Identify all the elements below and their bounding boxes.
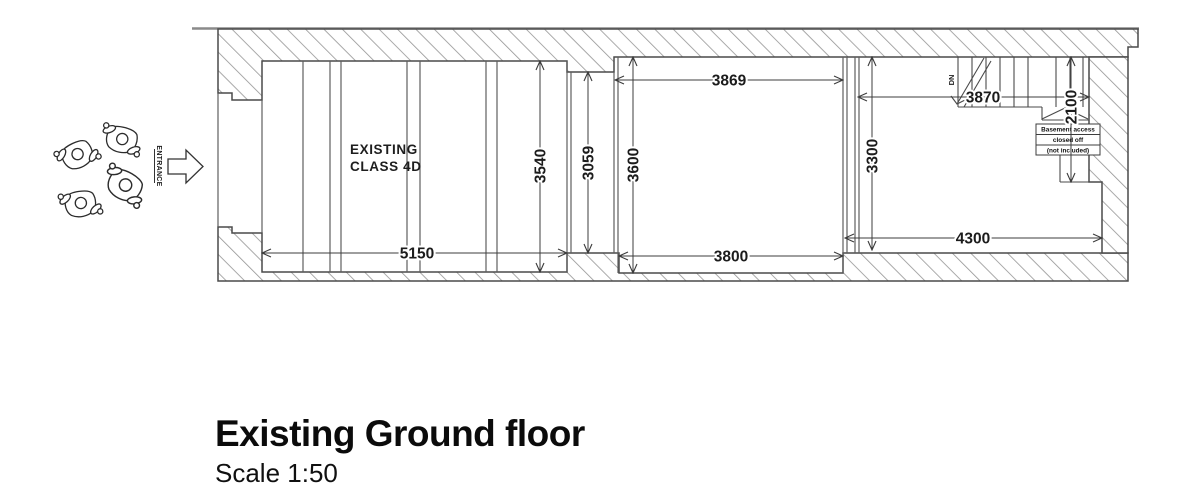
room-label-line1: EXISTING — [350, 142, 418, 157]
stairs-down-label: DN — [947, 75, 956, 86]
entrance-arrow — [168, 150, 203, 183]
dim-label: 3869 — [712, 73, 747, 90]
basement-note: Basement access closed off (not included… — [1036, 124, 1100, 155]
dim-left-room-depth: 3540 — [533, 61, 550, 272]
dim-label: 3059 — [581, 145, 598, 180]
person-figure — [97, 121, 146, 158]
person-figure — [57, 188, 104, 220]
dim-right-room-depth: 3300 — [865, 57, 882, 250]
title-block: Existing Ground floor Scale 1:50 — [215, 413, 585, 488]
room-label: EXISTING CLASS 4D — [350, 142, 422, 174]
dim-middle-room-depth: 3600 — [626, 57, 643, 273]
dim-right-room-bottom-width: 4300 — [845, 231, 1102, 248]
dim-right-room-top-width: 3870 — [858, 90, 1089, 107]
person-figure — [52, 134, 103, 177]
dim-label: 3540 — [533, 149, 550, 183]
page-title: Existing Ground floor — [215, 413, 585, 454]
basement-note-line1: Basement access — [1041, 127, 1095, 134]
people-figures — [52, 121, 152, 220]
dim-label: 4300 — [956, 231, 990, 248]
basement-note-line2: closed off — [1053, 137, 1084, 144]
basement-note-line3: (not included) — [1047, 148, 1089, 155]
floor-plan-drawing: DN Basement access closed off (not inclu… — [0, 0, 1200, 495]
dim-middle-room-top-width: 3869 — [615, 73, 843, 90]
dim-label: 3800 — [714, 249, 748, 266]
dim-label: 5150 — [400, 246, 434, 263]
dim-left-room-width: 5150 — [262, 246, 567, 263]
dim-label: 3870 — [966, 90, 1000, 107]
entrance-label: ENTRANCE — [155, 145, 162, 186]
dim-label: 2100 — [1064, 90, 1081, 124]
dim-stair-zone-depth: 2100 — [1064, 57, 1081, 182]
dim-passage-depth: 3059 — [581, 72, 598, 253]
bottom-wall — [218, 227, 1128, 281]
entrance: ENTRANCE — [155, 145, 204, 186]
dim-label: 3300 — [865, 139, 882, 173]
dim-middle-room-bottom-width: 3800 — [619, 249, 843, 266]
room-label-line2: CLASS 4D — [350, 159, 422, 174]
dim-label: 3600 — [626, 148, 643, 182]
person-figure — [97, 161, 153, 210]
scale-label: Scale 1:50 — [215, 458, 338, 488]
floor-plan-page: DN Basement access closed off (not inclu… — [0, 0, 1200, 495]
